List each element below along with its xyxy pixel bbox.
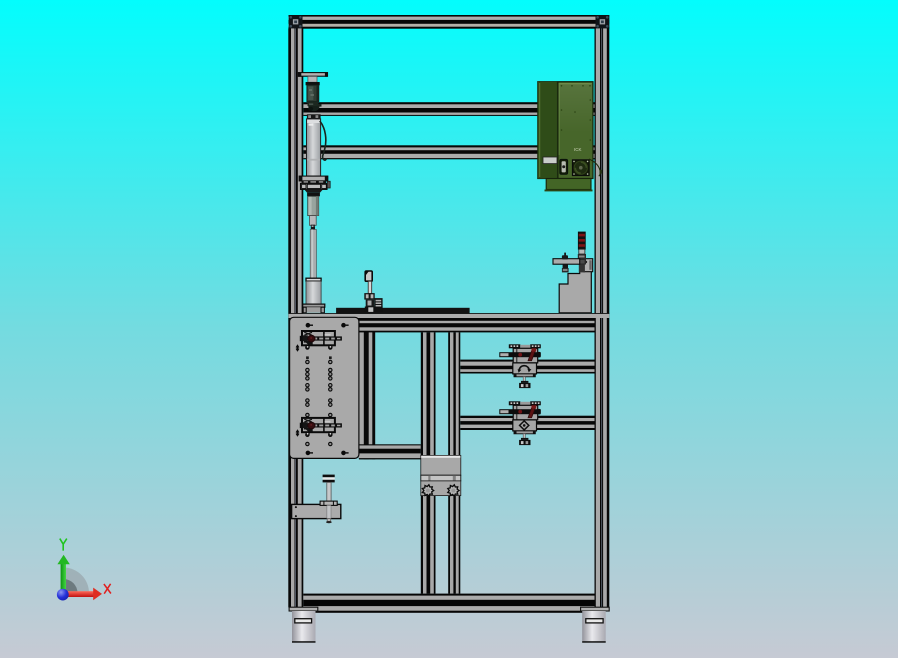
svg-text:ICK: ICK (574, 147, 582, 152)
